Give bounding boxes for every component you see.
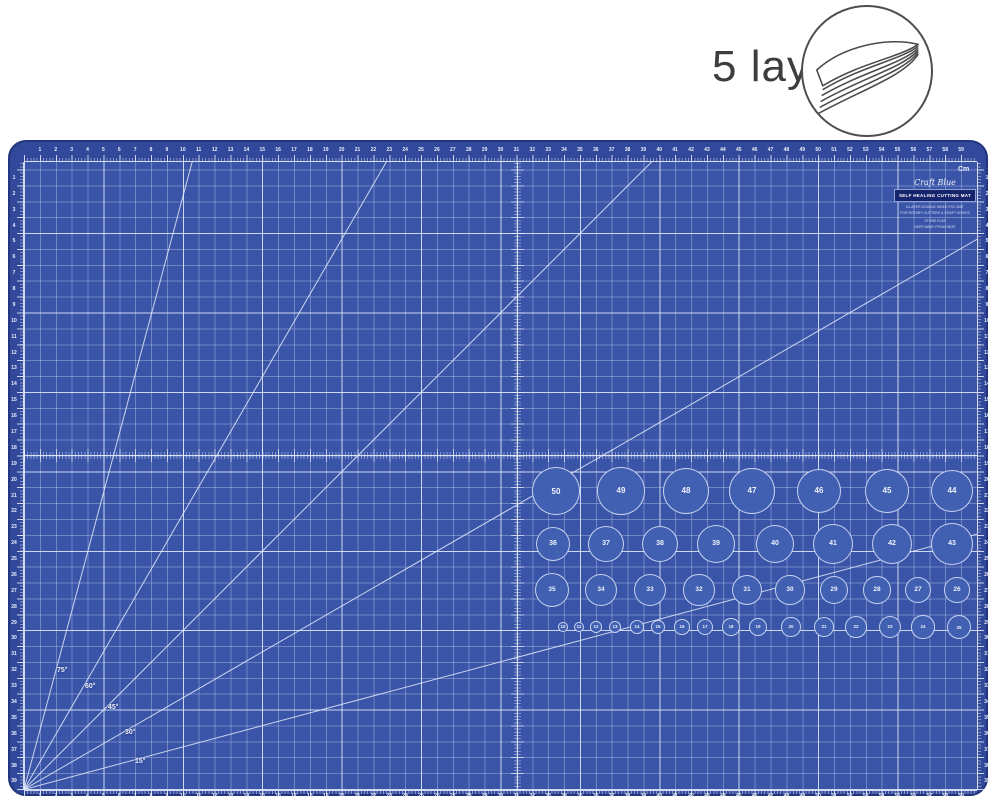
ruler-number: 26 xyxy=(981,572,993,578)
ruler-number: 52 xyxy=(844,147,856,153)
ruler-number: 24 xyxy=(399,793,411,799)
ruler-number: 9 xyxy=(161,793,173,799)
circle-13mm: 13 xyxy=(609,621,622,634)
circle-14mm: 14 xyxy=(630,620,644,634)
ruler-number: 33 xyxy=(8,683,20,689)
ruler-number: 13 xyxy=(981,365,993,371)
ruler-number: 24 xyxy=(981,540,993,546)
circle-19mm: 19 xyxy=(749,618,767,636)
circle-12mm: 12 xyxy=(590,621,602,633)
ruler-number: 3 xyxy=(981,207,993,213)
ruler-left: 1234567891011121314151617181920212223242… xyxy=(10,162,24,790)
ruler-number: 31 xyxy=(510,793,522,799)
ruler-number: 25 xyxy=(415,147,427,153)
brand-info-lines: 5-LAYER DOUBLE SIDED PVC MATFOR ROTARY C… xyxy=(894,205,976,230)
ruler-number: 29 xyxy=(479,147,491,153)
ruler-number: 18 xyxy=(8,445,20,451)
ruler-number: 33 xyxy=(542,147,554,153)
circle-34mm: 34 xyxy=(585,574,618,607)
ruler-number: 7 xyxy=(981,270,993,276)
angle-label-30: 30° xyxy=(125,729,136,736)
ruler-number: 10 xyxy=(177,147,189,153)
ruler-number: 40 xyxy=(653,793,665,799)
ruler-number: 59 xyxy=(955,147,967,153)
circle-25mm: 25 xyxy=(947,615,971,639)
ruler-right: 1234567891011121314151617181920212223242… xyxy=(977,162,990,790)
ruler-number: 7 xyxy=(129,793,141,799)
ruler-number: 52 xyxy=(844,793,856,799)
ruler-number: 13 xyxy=(224,147,236,153)
ruler-number: 50 xyxy=(812,147,824,153)
grid-area: Cm Craft Blue SELF HEALING CUTTING MAT 5… xyxy=(24,162,977,790)
ruler-number: 19 xyxy=(320,793,332,799)
brand-block: Craft Blue SELF HEALING CUTTING MAT 5-LA… xyxy=(894,178,976,230)
circle-30mm: 30 xyxy=(775,575,804,604)
ruler-number: 10 xyxy=(177,793,189,799)
ruler-number: 20 xyxy=(8,477,20,483)
ruler-number: 22 xyxy=(367,147,379,153)
ruler-number: 20 xyxy=(336,793,348,799)
brand-title-bar: SELF HEALING CUTTING MAT xyxy=(894,189,976,202)
circle-18mm: 18 xyxy=(722,618,739,635)
ruler-number: 38 xyxy=(8,763,20,769)
circle-46mm: 46 xyxy=(797,469,842,514)
ruler-number: 6 xyxy=(113,793,125,799)
ruler-number: 8 xyxy=(145,793,157,799)
ruler-number: 53 xyxy=(860,793,872,799)
ruler-number: 9 xyxy=(8,302,20,308)
circle-16mm: 16 xyxy=(674,619,690,635)
ruler-number: 31 xyxy=(981,651,993,657)
ruler-number: 12 xyxy=(209,147,221,153)
ruler-number: 16 xyxy=(8,413,20,419)
ruler-number: 37 xyxy=(8,747,20,753)
ruler-number: 40 xyxy=(653,147,665,153)
ruler-number: 27 xyxy=(8,588,20,594)
ruler-number: 25 xyxy=(415,793,427,799)
ruler-number: 22 xyxy=(981,508,993,514)
circle-37mm: 37 xyxy=(588,526,624,562)
ruler-number: 27 xyxy=(447,793,459,799)
ruler-number: 39 xyxy=(637,147,649,153)
circle-29mm: 29 xyxy=(820,576,848,604)
brand-info-line: 5-LAYER DOUBLE SIDED PVC MAT xyxy=(894,205,976,211)
ruler-number: 3 xyxy=(66,147,78,153)
ruler-number: 46 xyxy=(749,793,761,799)
ruler-number: 4 xyxy=(82,147,94,153)
angle-label-45: 45° xyxy=(108,704,119,711)
ruler-number: 21 xyxy=(8,493,20,499)
ruler-number: 9 xyxy=(981,302,993,308)
ruler-number: 34 xyxy=(981,699,993,705)
ruler-number: 20 xyxy=(336,147,348,153)
ruler-number: 1 xyxy=(981,175,993,181)
circle-35mm: 35 xyxy=(535,573,569,607)
circle-31mm: 31 xyxy=(732,575,762,605)
circle-40mm: 40 xyxy=(756,525,795,564)
ruler-number: 14 xyxy=(240,147,252,153)
circle-33mm: 33 xyxy=(634,574,666,606)
ruler-number: 18 xyxy=(304,147,316,153)
ruler-top: 1234567891011121314151617181920212223242… xyxy=(24,142,977,162)
ruler-number: 59 xyxy=(955,793,967,799)
ruler-number: 29 xyxy=(479,793,491,799)
ruler-number: 8 xyxy=(981,286,993,292)
ruler-number: 7 xyxy=(129,147,141,153)
ruler-number: 23 xyxy=(8,524,20,530)
ruler-number: 47 xyxy=(765,793,777,799)
ruler-number: 18 xyxy=(981,445,993,451)
ruler-number: 4 xyxy=(82,793,94,799)
circle-42mm: 42 xyxy=(872,524,913,565)
ruler-number: 26 xyxy=(431,147,443,153)
ruler-number: 12 xyxy=(209,793,221,799)
ruler-number: 38 xyxy=(981,763,993,769)
ruler-number: 42 xyxy=(685,147,697,153)
ruler-number: 36 xyxy=(981,731,993,737)
circle-17mm: 17 xyxy=(697,619,713,635)
circle-11mm: 11 xyxy=(574,622,585,633)
ruler-number: 48 xyxy=(780,147,792,153)
ruler-number: 46 xyxy=(749,147,761,153)
ruler-number: 15 xyxy=(981,397,993,403)
ruler-number: 35 xyxy=(8,715,20,721)
center-vertical-mm-ruler xyxy=(511,162,524,790)
angle-label-15: 15° xyxy=(135,758,146,765)
ruler-number: 2 xyxy=(50,147,62,153)
ruler-number: 37 xyxy=(606,793,618,799)
ruler-number: 23 xyxy=(383,147,395,153)
ruler-number: 2 xyxy=(50,793,62,799)
ruler-number: 44 xyxy=(717,793,729,799)
circle-23mm: 23 xyxy=(879,616,901,638)
product-image: 5 layers Cm Craft Blue SELF HEALING CUTT… xyxy=(0,0,1000,799)
circle-36mm: 36 xyxy=(536,527,571,562)
ruler-number: 43 xyxy=(701,147,713,153)
ruler-number: 25 xyxy=(981,556,993,562)
ruler-number: 41 xyxy=(669,147,681,153)
ruler-number: 54 xyxy=(876,793,888,799)
ruler-number: 19 xyxy=(981,461,993,467)
ruler-number: 36 xyxy=(8,731,20,737)
ruler-number: 21 xyxy=(352,793,364,799)
brand-logo-text: Craft Blue xyxy=(894,178,976,187)
circle-22mm: 22 xyxy=(845,616,866,637)
ruler-number: 16 xyxy=(272,147,284,153)
ruler-number: 6 xyxy=(8,254,20,260)
ruler-number: 30 xyxy=(981,635,993,641)
ruler-number: 30 xyxy=(494,793,506,799)
ruler-number: 30 xyxy=(8,635,20,641)
ruler-number: 58 xyxy=(939,147,951,153)
angle-label-60: 60° xyxy=(85,683,96,690)
cutting-mat: Cm Craft Blue SELF HEALING CUTTING MAT 5… xyxy=(8,140,988,796)
ruler-number: 42 xyxy=(685,793,697,799)
ruler-number: 25 xyxy=(8,556,20,562)
unit-label: Cm xyxy=(958,166,969,173)
ruler-number: 15 xyxy=(256,793,268,799)
circle-43mm: 43 xyxy=(931,523,973,565)
ruler-number: 8 xyxy=(8,286,20,292)
ruler-number: 10 xyxy=(981,318,993,324)
ruler-number: 34 xyxy=(558,147,570,153)
brand-info-line: KEEP AWAY FROM HEAT xyxy=(894,225,976,231)
ruler-number: 58 xyxy=(939,793,951,799)
ruler-number: 5 xyxy=(97,793,109,799)
ruler-number: 26 xyxy=(8,572,20,578)
ruler-number: 34 xyxy=(8,699,20,705)
ruler-number: 11 xyxy=(193,147,205,153)
circle-49mm: 49 xyxy=(597,467,645,515)
ruler-number: 11 xyxy=(8,334,20,340)
ruler-number: 8 xyxy=(145,147,157,153)
ruler-number: 34 xyxy=(558,793,570,799)
ruler-number: 5 xyxy=(97,147,109,153)
ruler-number: 29 xyxy=(981,620,993,626)
ruler-number: 12 xyxy=(8,350,20,356)
ruler-number: 1 xyxy=(34,147,46,153)
ruler-number: 11 xyxy=(981,334,993,340)
ruler-number: 12 xyxy=(981,350,993,356)
ruler-number: 13 xyxy=(8,365,20,371)
circle-15mm: 15 xyxy=(651,620,666,635)
ruler-number: 53 xyxy=(860,147,872,153)
ruler-number: 35 xyxy=(574,147,586,153)
ruler-number: 5 xyxy=(8,238,20,244)
ruler-number: 20 xyxy=(981,477,993,483)
ruler-number: 3 xyxy=(66,793,78,799)
center-horizontal-mm-ruler xyxy=(24,449,977,462)
ruler-number: 16 xyxy=(981,413,993,419)
ruler-number: 29 xyxy=(8,620,20,626)
ruler-number: 14 xyxy=(981,381,993,387)
ruler-number: 3 xyxy=(8,207,20,213)
circle-50mm: 50 xyxy=(532,467,581,516)
circle-32mm: 32 xyxy=(683,574,714,605)
ruler-number: 26 xyxy=(431,793,443,799)
ruler-number: 4 xyxy=(981,223,993,229)
ruler-number: 14 xyxy=(240,793,252,799)
ruler-number: 28 xyxy=(981,604,993,610)
ruler-number: 16 xyxy=(272,793,284,799)
ruler-number: 14 xyxy=(8,381,20,387)
ruler-number: 51 xyxy=(828,147,840,153)
circle-24mm: 24 xyxy=(911,615,934,638)
ruler-number: 36 xyxy=(590,147,602,153)
ruler-number: 33 xyxy=(542,793,554,799)
ruler-number: 31 xyxy=(8,651,20,657)
ruler-number: 23 xyxy=(981,524,993,530)
ruler-number: 57 xyxy=(923,147,935,153)
ruler-number: 30 xyxy=(494,147,506,153)
layered-sheets-icon xyxy=(803,7,931,135)
ruler-number: 9 xyxy=(161,147,173,153)
ruler-number: 32 xyxy=(526,793,538,799)
ruler-number: 10 xyxy=(8,318,20,324)
ruler-bottom: 1234567891011121314151617181920212223242… xyxy=(24,790,977,798)
ruler-number: 28 xyxy=(463,147,475,153)
ruler-number: 56 xyxy=(907,147,919,153)
ruler-number: 33 xyxy=(981,683,993,689)
ruler-number: 36 xyxy=(590,793,602,799)
ruler-number: 28 xyxy=(8,604,20,610)
ruler-number: 2 xyxy=(8,191,20,197)
ruler-number: 2 xyxy=(981,191,993,197)
ruler-number: 32 xyxy=(981,667,993,673)
circle-38mm: 38 xyxy=(642,526,679,563)
ruler-number: 1 xyxy=(8,175,20,181)
ruler-number: 49 xyxy=(796,793,808,799)
ruler-number: 38 xyxy=(622,793,634,799)
ruler-number: 17 xyxy=(288,147,300,153)
ruler-number: 24 xyxy=(8,540,20,546)
ruler-number: 47 xyxy=(765,147,777,153)
ruler-number: 6 xyxy=(113,147,125,153)
ruler-number: 37 xyxy=(981,747,993,753)
ruler-number: 51 xyxy=(828,793,840,799)
ruler-number: 17 xyxy=(8,429,20,435)
ruler-number: 56 xyxy=(907,793,919,799)
ruler-number: 32 xyxy=(526,147,538,153)
ruler-number: 27 xyxy=(981,588,993,594)
circle-47mm: 47 xyxy=(729,468,775,514)
ruler-number: 18 xyxy=(304,793,316,799)
ruler-number: 57 xyxy=(923,793,935,799)
ruler-number: 39 xyxy=(637,793,649,799)
ruler-number: 39 xyxy=(8,778,20,784)
circle-45mm: 45 xyxy=(865,469,909,513)
ruler-number: 21 xyxy=(981,493,993,499)
circle-48mm: 48 xyxy=(663,468,710,515)
ruler-number: 4 xyxy=(8,223,20,229)
ruler-number: 48 xyxy=(780,793,792,799)
circle-21mm: 21 xyxy=(814,617,834,637)
circle-10mm: 10 xyxy=(558,622,568,632)
ruler-number: 54 xyxy=(876,147,888,153)
ruler-number: 28 xyxy=(463,793,475,799)
ruler-number: 49 xyxy=(796,147,808,153)
ruler-number: 45 xyxy=(733,793,745,799)
ruler-number: 15 xyxy=(256,147,268,153)
ruler-number: 27 xyxy=(447,147,459,153)
ruler-number: 39 xyxy=(981,778,993,784)
circle-27mm: 27 xyxy=(905,577,931,603)
ruler-number: 35 xyxy=(574,793,586,799)
ruler-number: 13 xyxy=(224,793,236,799)
ruler-number: 23 xyxy=(383,793,395,799)
ruler-number: 35 xyxy=(981,715,993,721)
ruler-number: 55 xyxy=(892,147,904,153)
ruler-number: 38 xyxy=(622,147,634,153)
ruler-number: 24 xyxy=(399,147,411,153)
ruler-number: 17 xyxy=(288,793,300,799)
ruler-number: 6 xyxy=(981,254,993,260)
ruler-number: 22 xyxy=(367,793,379,799)
ruler-number: 50 xyxy=(812,793,824,799)
ruler-number: 15 xyxy=(8,397,20,403)
ruler-number: 32 xyxy=(8,667,20,673)
ruler-number: 19 xyxy=(320,147,332,153)
circle-39mm: 39 xyxy=(697,525,735,563)
angle-label-75: 75° xyxy=(57,667,68,674)
ruler-number: 22 xyxy=(8,508,20,514)
layers-badge-circle xyxy=(801,5,933,137)
circle-26mm: 26 xyxy=(944,577,969,602)
ruler-number: 44 xyxy=(717,147,729,153)
ruler-number: 17 xyxy=(981,429,993,435)
ruler-number: 19 xyxy=(8,461,20,467)
circle-41mm: 41 xyxy=(813,524,853,564)
ruler-number: 31 xyxy=(510,147,522,153)
ruler-number: 5 xyxy=(981,238,993,244)
ruler-number: 21 xyxy=(352,147,364,153)
ruler-number: 7 xyxy=(8,270,20,276)
ruler-number: 1 xyxy=(34,793,46,799)
ruler-number: 55 xyxy=(892,793,904,799)
ruler-number: 37 xyxy=(606,147,618,153)
ruler-number: 11 xyxy=(193,793,205,799)
ruler-number: 45 xyxy=(733,147,745,153)
ruler-number: 43 xyxy=(701,793,713,799)
circle-28mm: 28 xyxy=(863,576,890,603)
brand-info-line: FOR ROTARY CUTTERS & CRAFT KNIVES xyxy=(894,211,976,217)
circle-44mm: 44 xyxy=(931,470,974,513)
circle-20mm: 20 xyxy=(781,617,800,636)
ruler-number: 41 xyxy=(669,793,681,799)
